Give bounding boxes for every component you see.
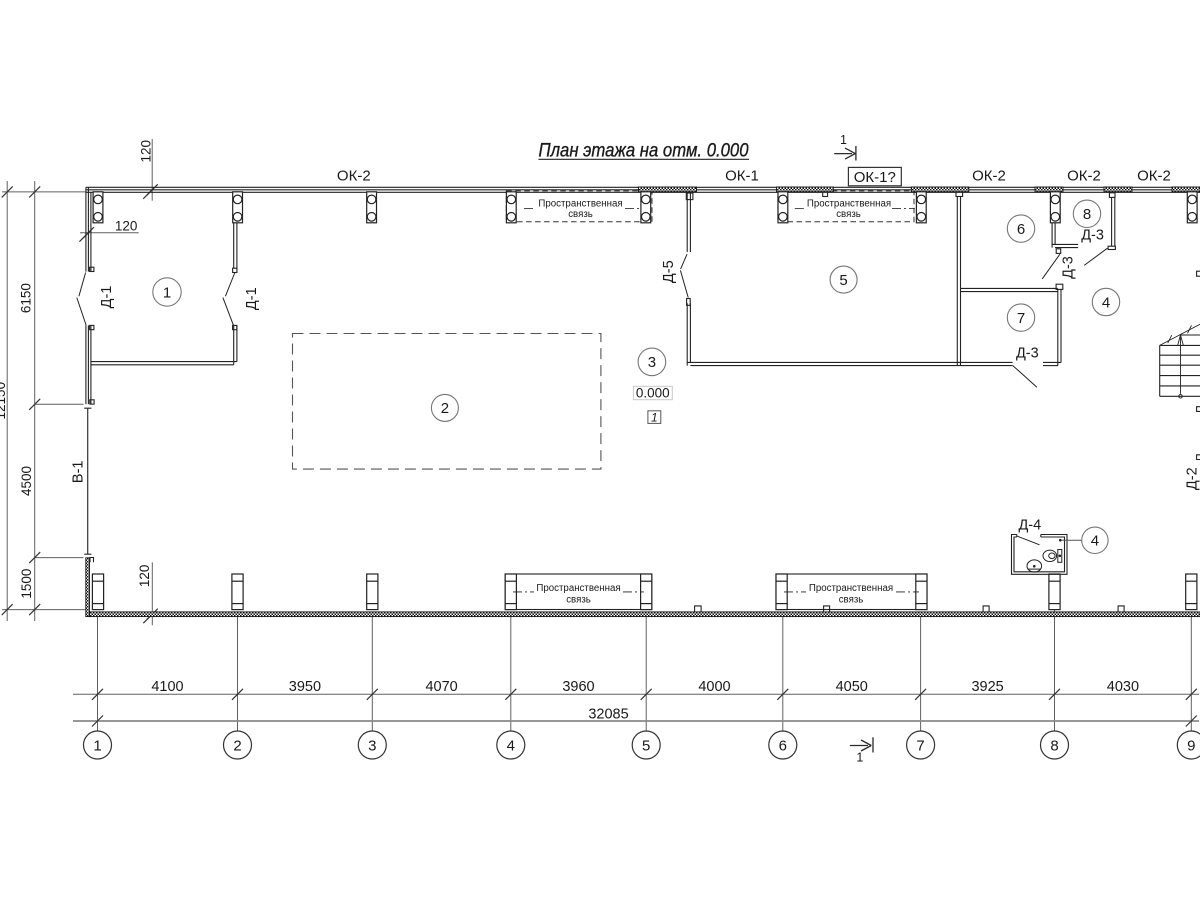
svg-text:3960: 3960 (562, 679, 594, 695)
svg-text:ОК-1: ОК-1 (725, 168, 759, 185)
svg-text:6150: 6150 (19, 283, 34, 313)
svg-text:120: 120 (137, 565, 152, 588)
svg-text:6: 6 (1017, 221, 1025, 238)
svg-text:Пространственная: Пространственная (538, 199, 622, 210)
svg-text:2: 2 (233, 737, 241, 754)
svg-text:Д-4: Д-4 (1018, 517, 1041, 533)
svg-text:120: 120 (115, 218, 138, 233)
svg-text:Пространственная: Пространственная (536, 583, 620, 594)
svg-text:Д-3: Д-3 (1081, 227, 1104, 243)
svg-text:8: 8 (1083, 206, 1091, 223)
svg-text:План этажа на отм. 0.000: План этажа на отм. 0.000 (539, 140, 749, 162)
svg-text:4: 4 (1091, 533, 1099, 550)
svg-text:Пространственная: Пространственная (809, 583, 893, 594)
svg-text:1: 1 (840, 133, 847, 147)
svg-text:5: 5 (642, 737, 650, 754)
svg-text:4500: 4500 (19, 466, 34, 496)
svg-text:4: 4 (507, 737, 515, 754)
svg-text:3: 3 (648, 354, 656, 371)
svg-text:4050: 4050 (836, 679, 868, 695)
svg-text:ОК-2: ОК-2 (1067, 168, 1101, 185)
svg-text:ОК-2: ОК-2 (1137, 168, 1171, 185)
svg-text:4000: 4000 (698, 679, 730, 695)
svg-text:связь: связь (568, 209, 593, 220)
svg-text:3950: 3950 (289, 679, 321, 695)
svg-text:6: 6 (779, 737, 787, 754)
svg-text:5: 5 (839, 272, 847, 289)
svg-text:9: 9 (1187, 737, 1195, 754)
svg-text:Д-5: Д-5 (661, 260, 677, 283)
svg-text:8: 8 (1050, 737, 1058, 754)
svg-text:0.000: 0.000 (636, 386, 670, 401)
svg-text:12150: 12150 (0, 382, 8, 420)
svg-text:В-1: В-1 (71, 461, 87, 484)
svg-text:Д-2: Д-2 (1184, 467, 1200, 490)
svg-text:1: 1 (651, 410, 658, 424)
svg-text:1: 1 (856, 751, 863, 765)
svg-text:связь: связь (566, 595, 591, 606)
svg-text:связь: связь (839, 595, 864, 606)
svg-text:ОК-2: ОК-2 (337, 168, 371, 185)
svg-text:Д-1: Д-1 (244, 287, 260, 310)
svg-text:3: 3 (368, 737, 376, 754)
svg-text:Д-3: Д-3 (1061, 256, 1077, 279)
svg-text:7: 7 (1017, 310, 1025, 327)
svg-text:Д-3: Д-3 (1016, 345, 1039, 361)
svg-text:1: 1 (163, 284, 171, 301)
svg-text:Д-1: Д-1 (99, 286, 115, 309)
svg-text:ОК-1?: ОК-1? (854, 169, 896, 186)
svg-text:связь: связь (836, 209, 861, 220)
svg-text:32085: 32085 (588, 706, 628, 722)
svg-text:4070: 4070 (425, 679, 457, 695)
svg-text:120: 120 (138, 140, 153, 163)
svg-text:2: 2 (441, 400, 449, 417)
svg-text:1: 1 (93, 737, 101, 754)
svg-text:1500: 1500 (19, 569, 34, 599)
svg-text:3925: 3925 (971, 679, 1003, 695)
svg-text:4030: 4030 (1107, 679, 1139, 695)
svg-text:7: 7 (916, 737, 924, 754)
svg-text:4: 4 (1102, 294, 1110, 311)
svg-text:Пространственная: Пространственная (807, 199, 891, 210)
svg-text:ОК-2: ОК-2 (972, 168, 1006, 185)
svg-text:4100: 4100 (151, 679, 183, 695)
